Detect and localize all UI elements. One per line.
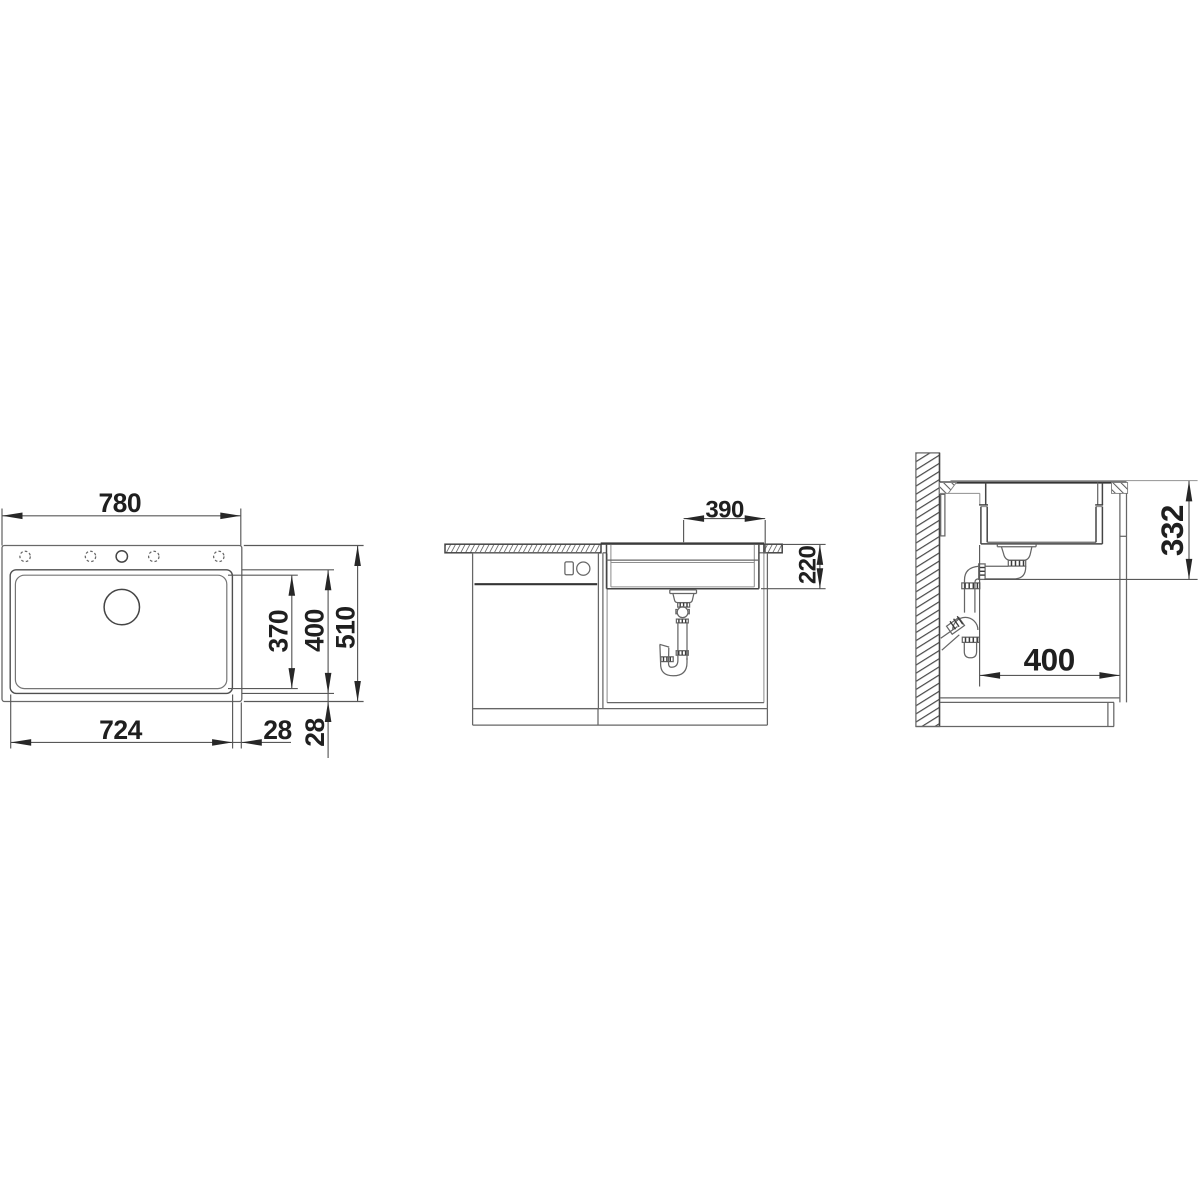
svg-text:370: 370	[264, 610, 294, 653]
svg-text:510: 510	[330, 606, 360, 649]
svg-text:724: 724	[99, 715, 142, 745]
svg-text:28: 28	[263, 715, 291, 745]
svg-text:400: 400	[1024, 641, 1075, 677]
svg-text:400: 400	[300, 609, 330, 652]
svg-text:28: 28	[300, 718, 330, 746]
svg-text:780: 780	[98, 488, 141, 518]
svg-text:332: 332	[1154, 505, 1190, 556]
svg-text:390: 390	[705, 496, 744, 523]
